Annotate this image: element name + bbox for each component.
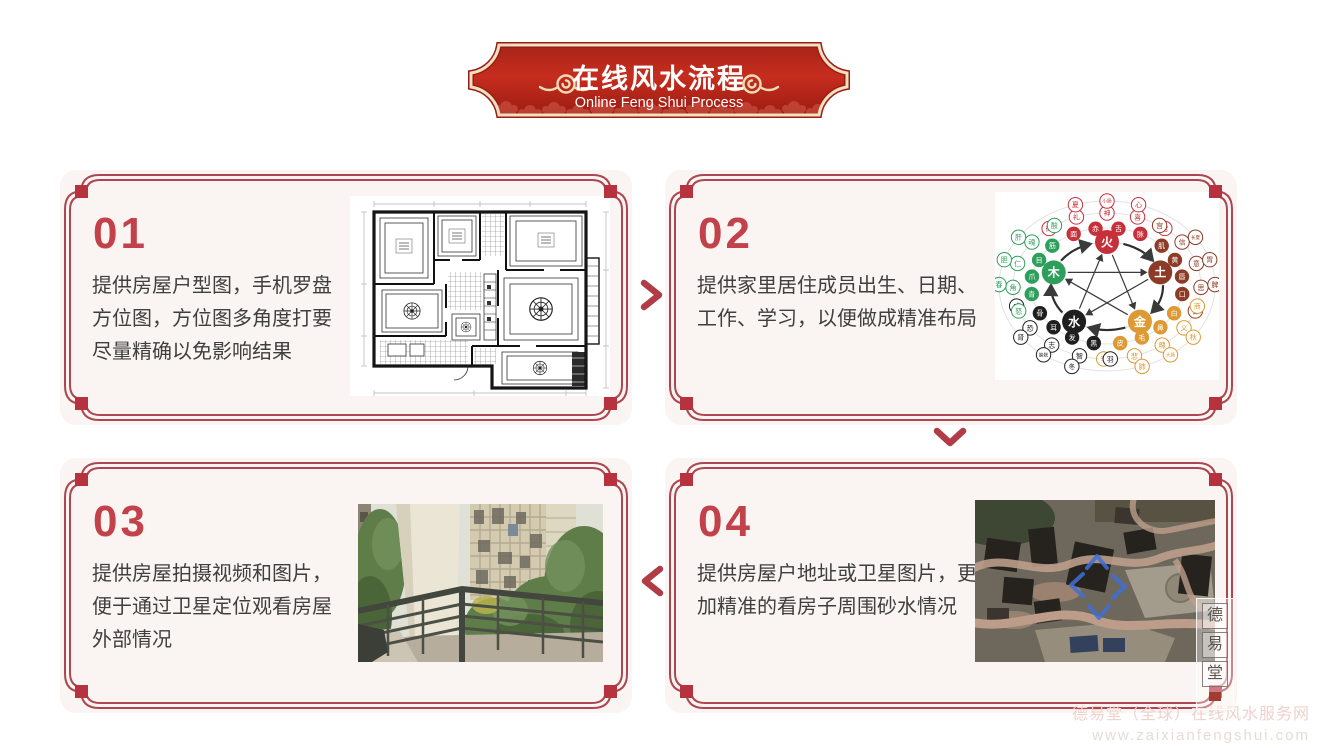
step-text-line: 提供家里居住成员出生、日期、 [697,270,977,303]
svg-text:胆: 胆 [1001,256,1008,264]
svg-text:长夏: 长夏 [1191,234,1201,241]
svg-text:义: 义 [1181,324,1188,332]
svg-text:志: 志 [1048,341,1055,350]
five-elements-chart: 脉舌赤面苦喜神礼徵心小肠夏火口唇黄肌甘思意信宫脾胃长夏土皮毛鼻白辛悲魄义商肺大肠… [995,192,1219,380]
seal-watermark: 德 易 堂 [1196,598,1234,710]
svg-text:信: 信 [1179,238,1186,247]
balcony-photo [358,504,603,662]
svg-text:土: 土 [1154,265,1166,280]
svg-text:口: 口 [1179,291,1186,299]
svg-text:羽: 羽 [1107,355,1114,363]
step-text-line: 尽量精确以免影响结果 [92,336,332,369]
seal-char: 德 [1202,603,1228,629]
site-watermark-name: 德易堂（全球）在线风水服务网 [1072,700,1310,724]
page: 在线风水流程 Online Feng Shui Process 01 提供房屋户… [0,0,1318,748]
floor-plan-image [350,196,610,396]
step-number: 02 [698,212,753,256]
svg-text:鼻: 鼻 [1157,323,1164,332]
seal-red-mark [1209,692,1221,701]
svg-text:骨: 骨 [1036,310,1043,318]
svg-text:宫: 宫 [1156,221,1163,230]
svg-text:仁: 仁 [1014,259,1021,268]
svg-text:魄: 魄 [1159,341,1166,350]
svg-text:肺: 肺 [1139,363,1146,371]
step-card-02: 02 提供家里居住成员出生、日期、 工作、学习，以便做成精准布局 [665,170,1237,425]
svg-text:耳: 耳 [1050,324,1057,332]
seal-char: 堂 [1202,661,1228,687]
svg-text:水: 水 [1068,314,1081,329]
step-text: 提供房屋户地址或卫星图片，更 加精准的看房子周围砂水情况 [697,558,977,624]
site-watermark: 德易堂（全球）在线风水服务网 www.zaixianfengshui.com [1072,700,1310,744]
step-text-line: 工作、学习，以便做成精准布局 [697,303,977,336]
arrow-down-icon [930,425,970,451]
svg-text:脉: 脉 [1137,229,1144,238]
svg-text:黄: 黄 [1171,255,1178,264]
svg-text:恐: 恐 [1026,324,1033,332]
svg-text:心: 心 [1135,201,1142,209]
svg-text:神: 神 [1104,209,1111,218]
svg-text:火: 火 [1101,235,1114,249]
svg-text:冬: 冬 [1068,362,1075,371]
svg-text:角: 角 [1010,283,1017,292]
step-text: 提供房屋拍摄视频和图片， 便于通过卫星定位观看房屋 外部情况 [92,558,332,657]
step-text-line: 方位图，方位图多角度打要 [92,303,332,336]
step-text-line: 提供房屋户型图，手机罗盘 [92,270,332,303]
svg-text:大肠: 大肠 [1166,351,1176,358]
svg-text:面: 面 [1070,230,1077,238]
svg-text:礼: 礼 [1073,212,1080,221]
svg-text:怒: 怒 [1015,306,1022,315]
svg-text:黑: 黑 [1090,340,1097,348]
arrow-right-icon [636,277,666,313]
svg-text:思: 思 [1197,284,1204,292]
svg-text:悲: 悲 [1131,351,1138,360]
svg-text:胃: 胃 [1206,256,1213,264]
step-text-line: 加精准的看房子周围砂水情况 [697,591,977,624]
svg-text:肝: 肝 [1015,234,1022,242]
svg-text:木: 木 [1047,265,1061,280]
svg-text:赤: 赤 [1092,225,1099,233]
step-card-01: 01 提供房屋户型图，手机罗盘 方位图，方位图多角度打要 尽量精确以免影响结果 [60,170,632,425]
svg-text:发: 发 [1069,333,1076,342]
step-card-04: 04 提供房屋户地址或卫星图片，更 加精准的看房子周围砂水情况 [665,458,1237,713]
site-watermark-url: www.zaixianfengshui.com [1072,727,1310,744]
svg-text:肌: 肌 [1158,242,1165,250]
svg-text:白: 白 [1171,309,1178,318]
step-card-03: 03 提供房屋拍摄视频和图片， 便于通过卫星定位观看房屋 外部情况 [60,458,632,713]
svg-text:筋: 筋 [1049,241,1056,250]
page-subtitle: Online Feng Shui Process [575,95,743,111]
svg-text:喜: 喜 [1134,212,1141,221]
page-title: 在线风水流程 [572,64,746,94]
svg-text:意: 意 [1193,259,1200,268]
svg-text:目: 目 [1036,256,1043,264]
arrow-left-icon [638,563,668,599]
step-text: 提供家里居住成员出生、日期、 工作、学习，以便做成精准布局 [697,270,977,336]
svg-text:商: 商 [1194,302,1201,311]
svg-text:脾: 脾 [1211,280,1218,289]
svg-text:青: 青 [1028,290,1035,299]
step-text-line: 便于通过卫星定位观看房屋 [92,591,332,624]
svg-text:魂: 魂 [1028,238,1035,247]
svg-text:小肠: 小肠 [1102,198,1112,205]
step-number: 04 [698,500,753,544]
step-text-line: 外部情况 [92,624,332,657]
svg-text:酸: 酸 [1051,221,1058,230]
svg-text:膀胱: 膀胱 [1039,351,1049,358]
svg-text:毛: 毛 [1138,333,1145,342]
step-text-line: 提供房屋拍摄视频和图片， [92,558,332,591]
svg-text:肾: 肾 [1017,333,1024,342]
satellite-photo [975,500,1215,662]
svg-text:春: 春 [996,280,1003,289]
svg-text:智: 智 [1076,351,1083,360]
svg-text:皮: 皮 [1117,339,1124,348]
svg-text:金: 金 [1133,314,1147,329]
header-banner: 在线风水流程 Online Feng Shui Process [466,40,852,120]
step-number: 03 [93,500,148,544]
svg-text:唇: 唇 [1178,273,1185,281]
svg-text:夏: 夏 [1072,201,1079,209]
step-text: 提供房屋户型图，手机罗盘 方位图，方位图多角度打要 尽量精确以免影响结果 [92,270,332,369]
seal-char: 易 [1202,632,1228,658]
svg-text:秋: 秋 [1190,333,1197,342]
svg-text:舌: 舌 [1115,224,1122,233]
step-number: 01 [93,212,148,256]
svg-text:爪: 爪 [1029,273,1036,281]
step-text-line: 提供房屋户地址或卫星图片，更 [697,558,977,591]
